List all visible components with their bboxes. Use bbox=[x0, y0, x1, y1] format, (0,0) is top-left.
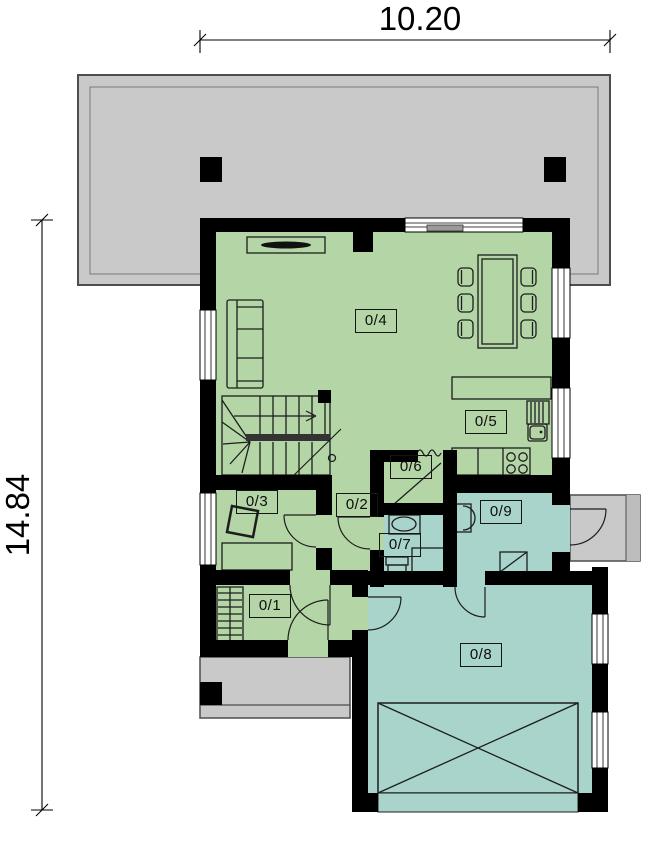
terrace-column bbox=[544, 157, 566, 182]
room-label-0-3: 0/3 bbox=[236, 490, 278, 514]
terrace-slider-window bbox=[405, 218, 523, 232]
porch bbox=[200, 657, 350, 718]
window bbox=[592, 712, 608, 768]
height-dimension: 14.84 bbox=[0, 440, 35, 590]
window bbox=[552, 388, 570, 458]
room-label-0-2: 0/2 bbox=[336, 493, 378, 517]
window bbox=[592, 614, 608, 664]
width-dimension: 10.20 bbox=[320, 0, 520, 38]
floor-plan-drawing bbox=[0, 0, 660, 843]
garage-door bbox=[378, 793, 578, 812]
window bbox=[200, 310, 216, 380]
room-label-0-8: 0/8 bbox=[460, 643, 502, 667]
room-label-0-4: 0/4 bbox=[355, 309, 397, 333]
room-label-0-5: 0/5 bbox=[465, 410, 507, 434]
window bbox=[200, 493, 216, 565]
floor-plan: 10.20 14.84 0/1 0/2 0/3 0/4 0/5 0/6 0/7 … bbox=[0, 0, 660, 843]
room-label-0-1: 0/1 bbox=[249, 594, 291, 618]
entry-step bbox=[570, 495, 640, 561]
porch-column bbox=[200, 682, 222, 705]
room-label-0-9: 0/9 bbox=[480, 500, 522, 524]
window bbox=[552, 268, 570, 338]
room-label-0-7: 0/7 bbox=[379, 533, 421, 557]
room-floors bbox=[216, 232, 592, 812]
room-label-0-6: 0/6 bbox=[390, 455, 432, 479]
terrace-column bbox=[200, 157, 222, 182]
